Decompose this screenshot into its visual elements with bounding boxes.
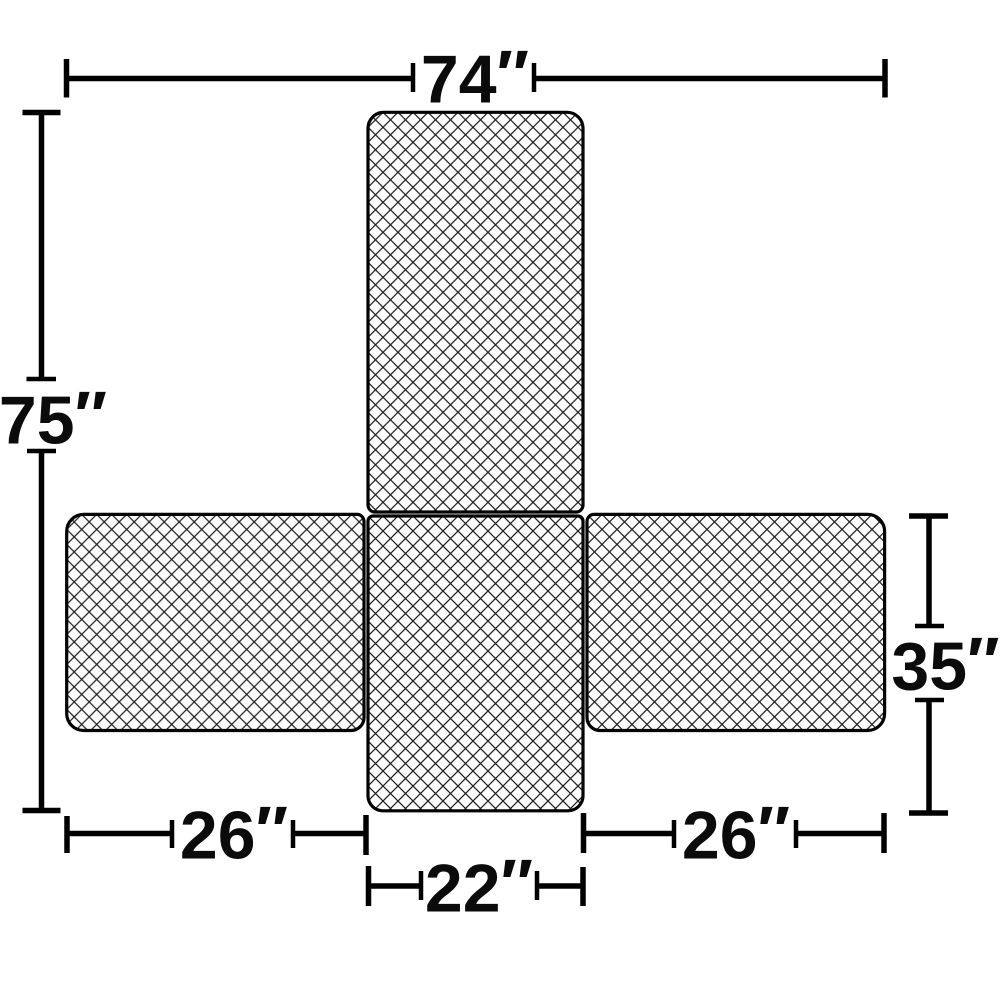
svg-text:26″: 26″	[180, 793, 288, 874]
svg-text:22″: 22″	[425, 846, 533, 927]
svg-text:74″: 74″	[421, 37, 529, 118]
svg-text:26″: 26″	[682, 793, 790, 874]
svg-text:35″: 35″	[891, 624, 999, 705]
svg-text:75″: 75″	[0, 378, 107, 459]
